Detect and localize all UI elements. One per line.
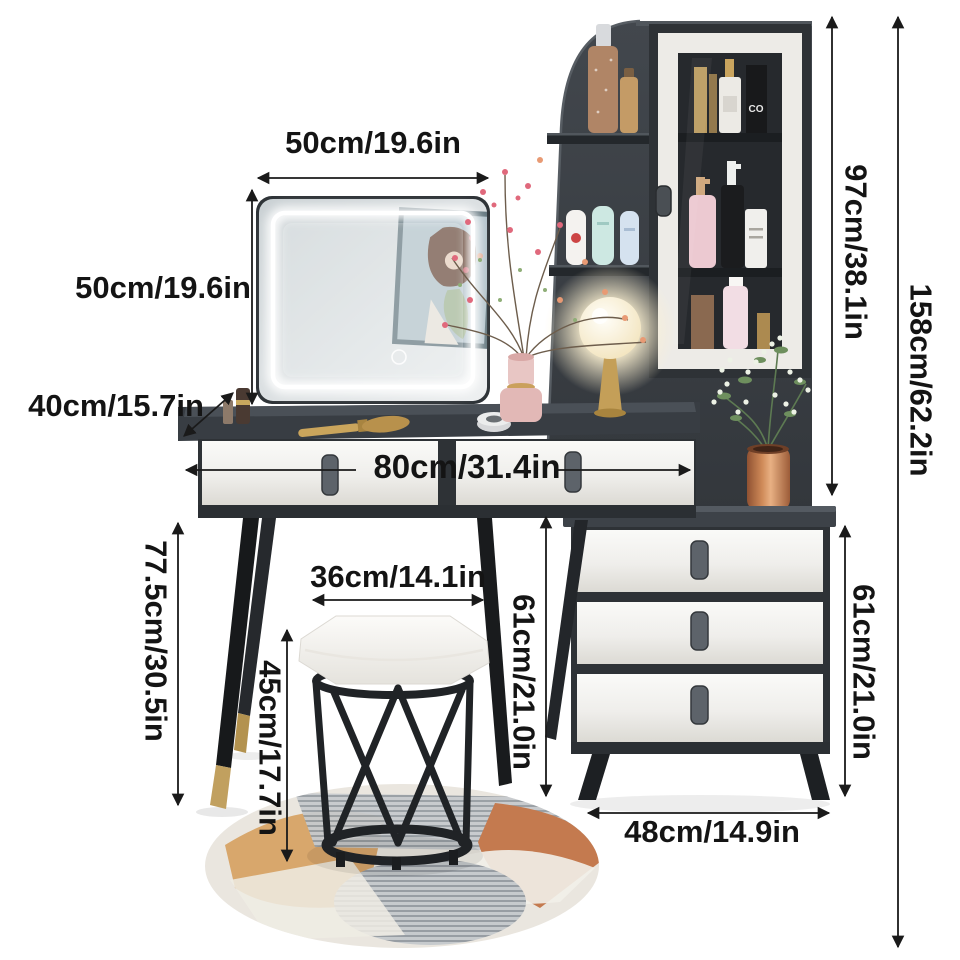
stool-width-label: 36cm/14.1in [310,561,486,592]
cabinet-height-label-left: 61cm/21.0in [509,594,540,770]
table-width-label: 80cm/31.4in [373,450,560,483]
drawer-handle [322,455,338,495]
cabinet-foot-right [800,754,830,800]
lipstick [236,388,250,424]
stool-height-label: 45cm/17.7in [255,660,286,836]
table-height-label: 77.5cm/30.5in [141,540,172,742]
drawer-handle [691,612,708,650]
product-dimension-image: CO [0,0,960,960]
hutch-height-label: 97cm/38.1in [841,164,872,340]
drawer-handle [565,452,581,492]
cabinet-width-label: 48cm/14.9in [624,816,800,847]
cabinet-door-handle [656,186,671,216]
cosmetics-middle-shelf [566,206,639,265]
black-bottle-label: CO [749,104,764,115]
cabinet-foot-left [578,754,610,800]
side-cabinet [563,506,836,813]
drawer-handle [691,686,708,724]
mirror-height-label: 50cm/19.6in [75,272,251,303]
led-mirror [256,196,493,404]
cabinet-height-label-right: 61cm/21.0in [849,584,880,760]
mirror-width-label: 50cm/19.6in [285,127,461,158]
stool [299,616,489,870]
drawer-handle [691,541,708,579]
stool-cushion [299,616,489,684]
table-depth-label: 40cm/15.7in [28,390,204,421]
total-height-label: 158cm/62.2in [906,283,937,476]
